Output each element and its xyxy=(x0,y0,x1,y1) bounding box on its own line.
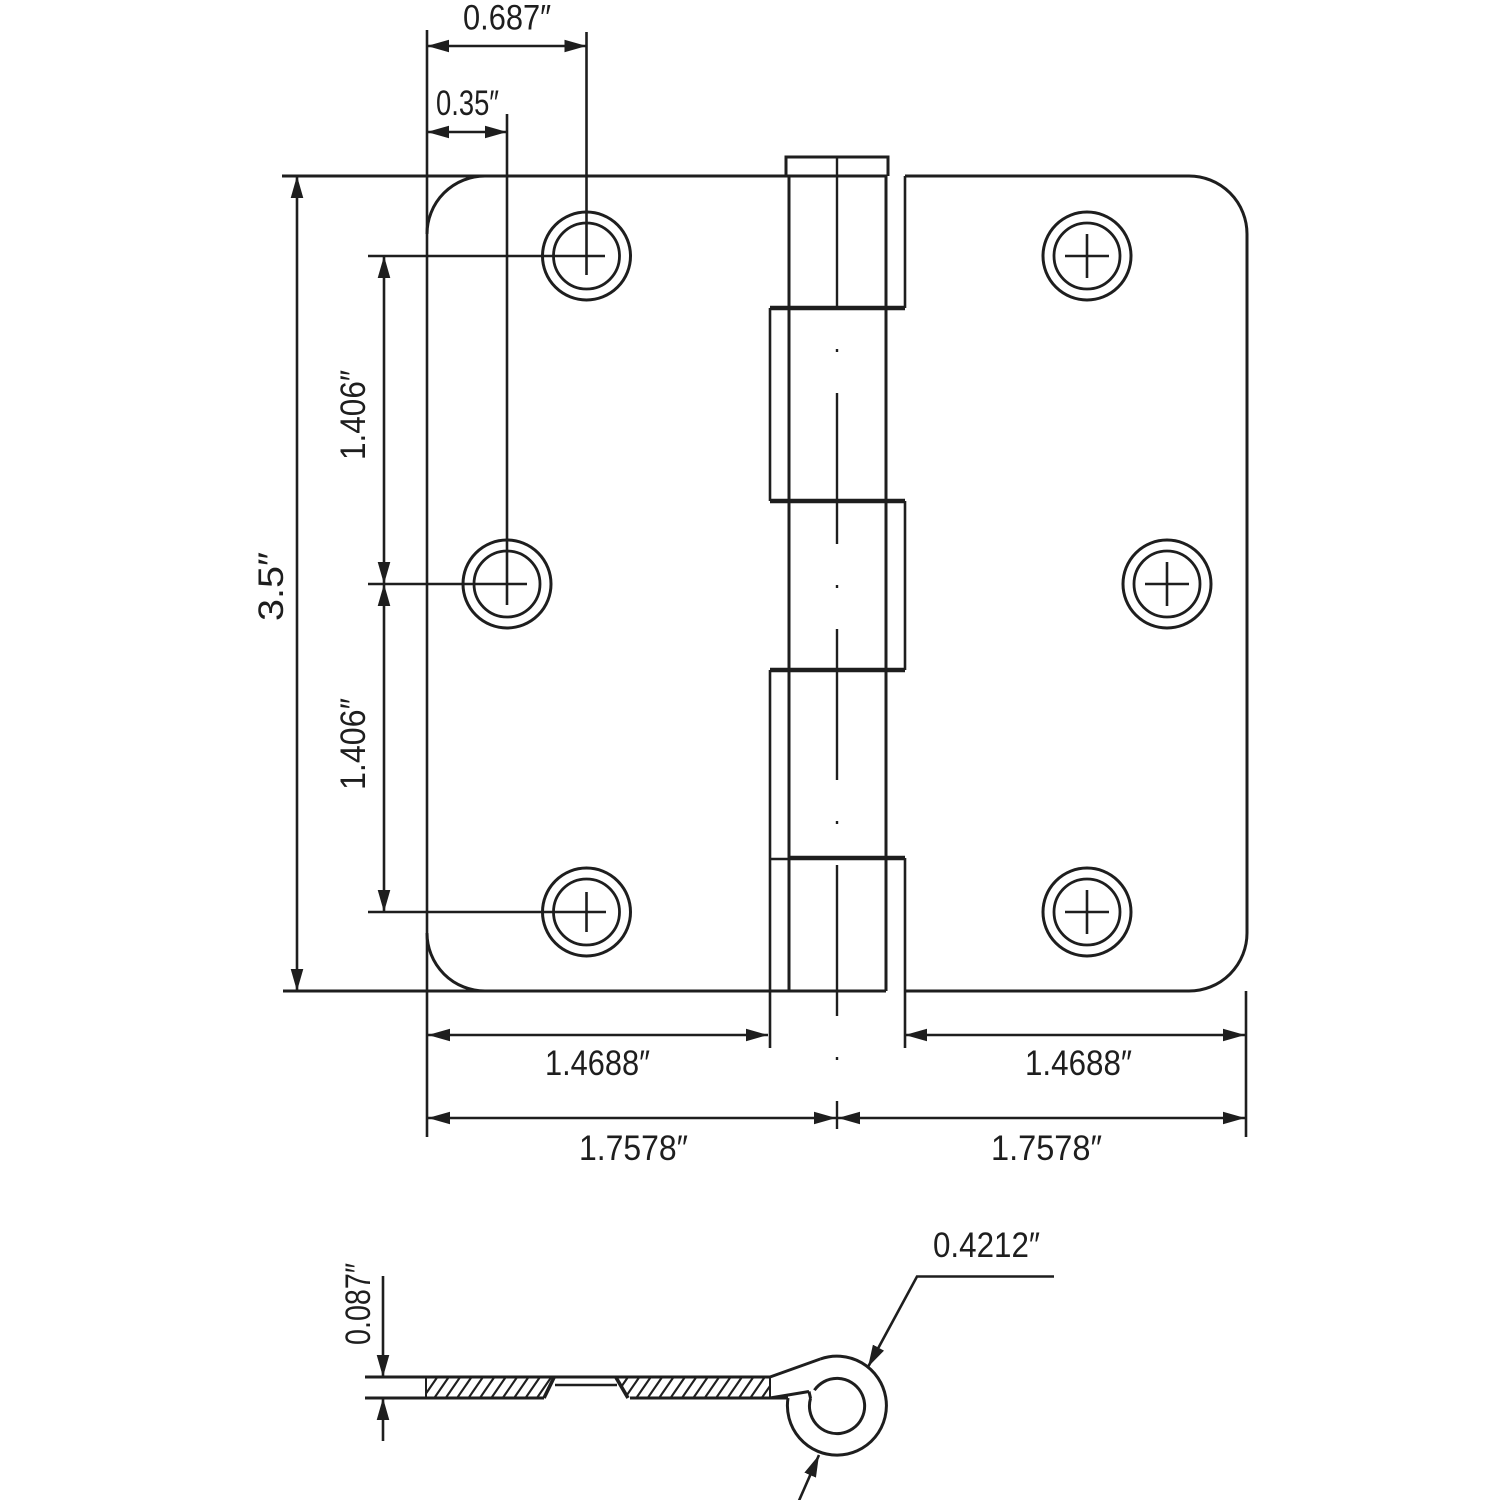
svg-text:1.406″: 1.406″ xyxy=(334,370,373,460)
svg-text:1.7578″: 1.7578″ xyxy=(579,1129,688,1168)
svg-text:0.4212″: 0.4212″ xyxy=(933,1226,1040,1265)
svg-text:1.4688″: 1.4688″ xyxy=(545,1044,650,1083)
svg-text:0.087″: 0.087″ xyxy=(339,1263,378,1345)
svg-text:1.4688″: 1.4688″ xyxy=(1025,1044,1132,1083)
svg-text:1.7578″: 1.7578″ xyxy=(991,1129,1102,1168)
svg-text:1.406″: 1.406″ xyxy=(334,698,373,790)
svg-text:0.35″: 0.35″ xyxy=(436,84,499,123)
svg-text:3.5″: 3.5″ xyxy=(252,552,291,621)
svg-text:0.687″: 0.687″ xyxy=(463,0,551,38)
